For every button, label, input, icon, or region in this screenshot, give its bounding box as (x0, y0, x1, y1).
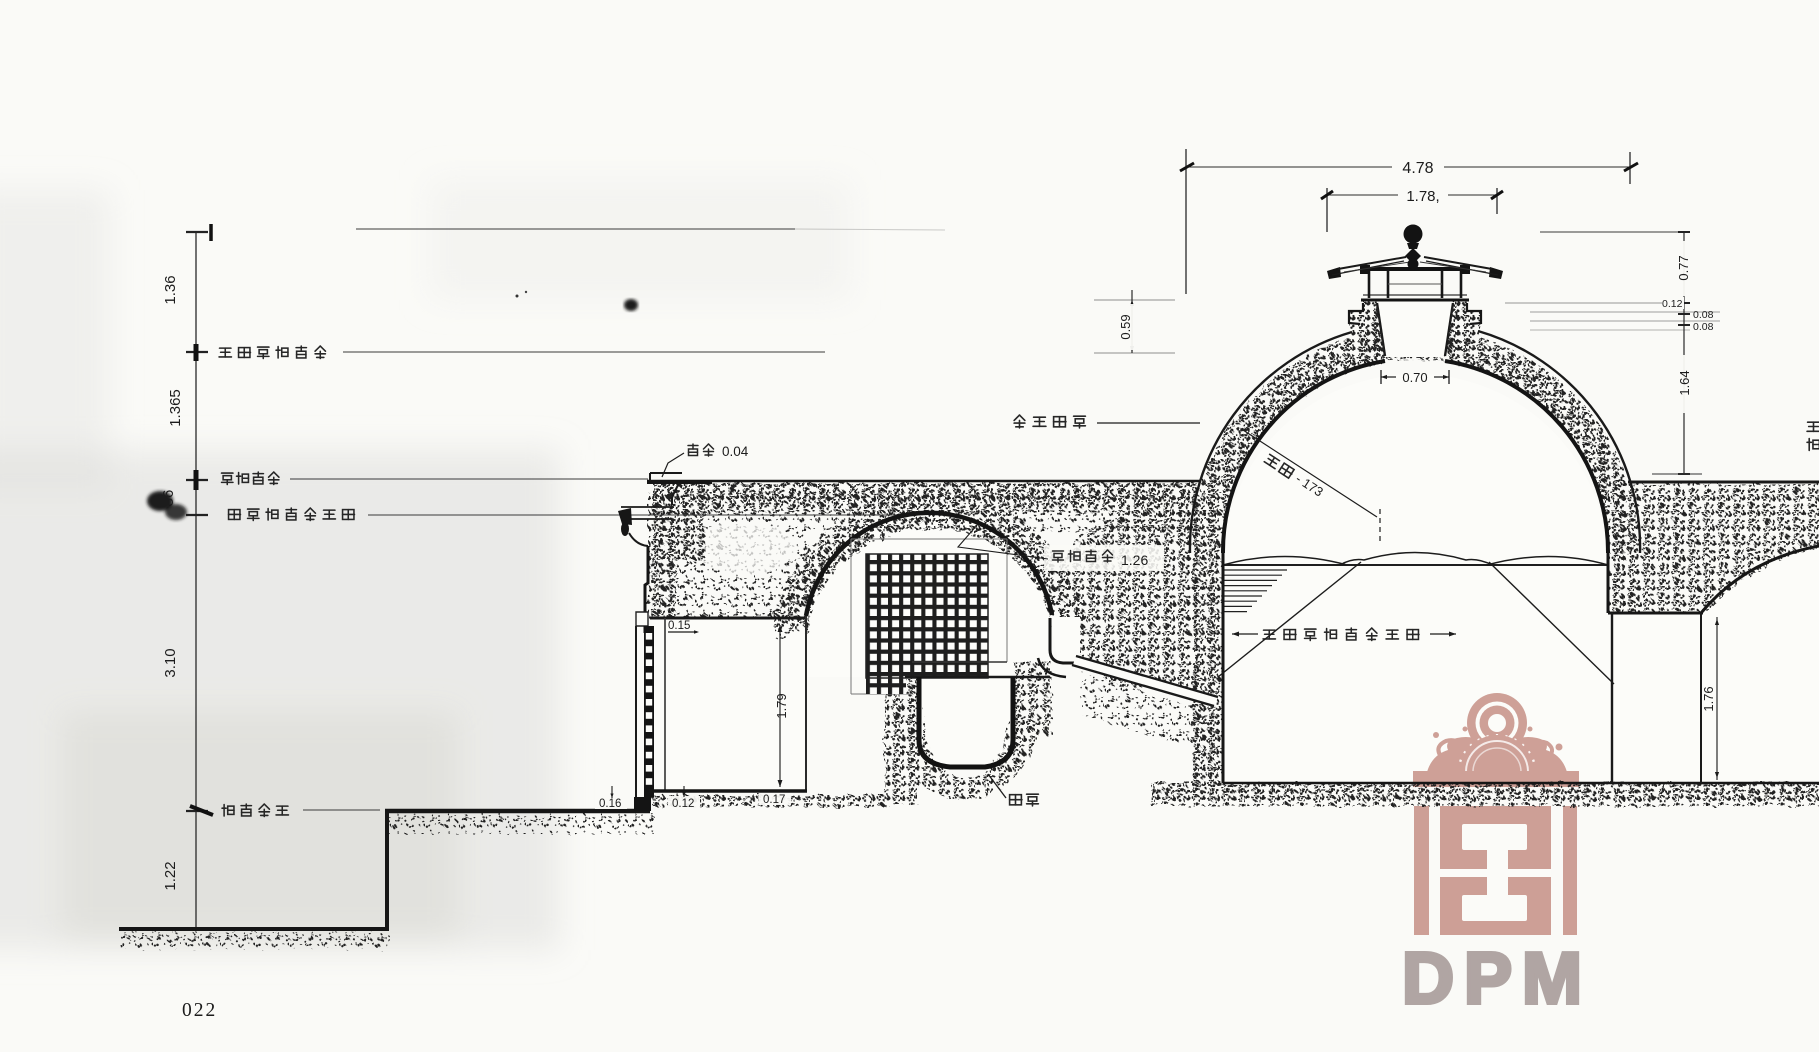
svg-text:0.08: 0.08 (1693, 309, 1714, 321)
svg-text:0.15: 0.15 (668, 620, 690, 632)
svg-text:1.22: 1.22 (162, 861, 179, 890)
svg-text:0.59: 0.59 (1118, 314, 1133, 339)
svg-text:1.64: 1.64 (1677, 370, 1692, 395)
svg-text:1.26: 1.26 (1121, 552, 1148, 568)
svg-text:DPM: DPM (1402, 939, 1592, 1019)
svg-text:0.08: 0.08 (1693, 321, 1714, 333)
svg-text:1.365: 1.365 (167, 389, 184, 427)
svg-text:0.70: 0.70 (1402, 370, 1427, 385)
svg-text:1.79: 1.79 (774, 693, 789, 718)
svg-text:1.76: 1.76 (1701, 686, 1716, 711)
svg-text:0.12: 0.12 (672, 798, 694, 810)
svg-text:0.77: 0.77 (1676, 255, 1691, 280)
svg-text:4.78: 4.78 (1402, 160, 1433, 177)
svg-text:0.12: 0.12 (1662, 298, 1683, 310)
svg-text:1.36: 1.36 (162, 275, 179, 304)
svg-text:0.17: 0.17 (763, 794, 785, 806)
svg-text:1.78,: 1.78, (1406, 188, 1439, 205)
svg-text:0.16: 0.16 (599, 798, 621, 810)
svg-text:3.10: 3.10 (162, 648, 179, 677)
svg-text:022: 022 (182, 1000, 217, 1021)
svg-text:0.04: 0.04 (722, 444, 749, 459)
